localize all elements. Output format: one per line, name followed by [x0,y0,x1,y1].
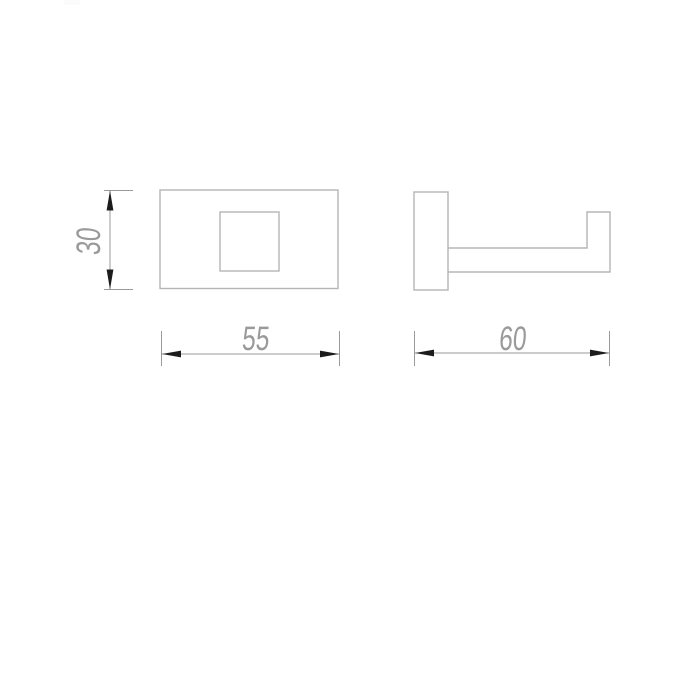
front-view-outline [160,190,338,289]
dim-height-arrowhead-bottom [107,270,114,290]
side-view-wall-plate [414,192,448,290]
dimension-front-width: 55 [162,320,340,366]
dim-depth-arrowhead-right [590,350,609,357]
dim-depth-arrowhead-left [415,350,434,357]
dimension-front-height: 30 [70,191,133,290]
side-view [414,192,610,290]
dim-height-label: 30 [70,226,108,257]
dim-width-arrowhead-left [162,351,181,358]
side-view-hook-arm [448,212,610,272]
technical-drawing-canvas: 30 55 60 [0,0,700,700]
dim-width-label: 55 [241,320,272,358]
dimension-side-depth: 60 [415,320,610,366]
front-view-inner-square [220,212,279,271]
dim-height-arrowhead-top [107,191,114,211]
technical-drawing-page: 30 55 60 [0,0,700,700]
dim-depth-label: 60 [498,320,529,358]
front-view [160,190,338,289]
dim-width-arrowhead-right [320,351,339,358]
watermark-remnant [64,0,80,5]
